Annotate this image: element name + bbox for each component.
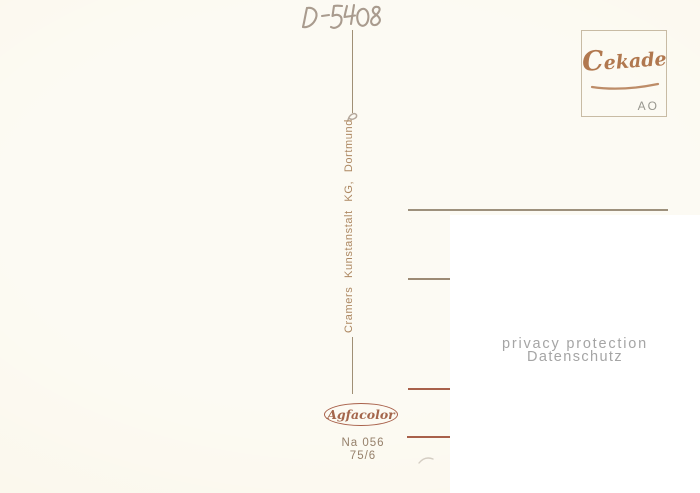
faint-pen-mark (418, 456, 434, 466)
series-number: 75/6 (324, 450, 402, 463)
address-line-2 (408, 278, 452, 280)
publisher-imprint: Cramers Kunstanstalt KG, Dortmund (343, 123, 359, 333)
cekade-logo-underline (588, 79, 662, 93)
address-line-1 (408, 209, 668, 211)
address-line-4 (407, 436, 451, 438)
handwritten-postal-code (294, 0, 398, 38)
agfacolor-badge: Agfacolor (324, 403, 398, 426)
privacy-overlay-text: privacy protection Datenschutz (450, 338, 700, 364)
privacy-line-german: Datenschutz (450, 351, 700, 364)
catalog-number: Na 056 (324, 437, 402, 450)
privacy-overlay: privacy protection Datenschutz (450, 215, 700, 493)
stamp-box-corner-label: AO (638, 99, 659, 113)
cekade-logo: Cekade (581, 41, 667, 78)
divider-line-bottom (352, 337, 353, 394)
catalog-block: Na 056 75/6 (324, 437, 402, 462)
stamp-box: Cekade AO (581, 30, 667, 117)
address-line-3 (408, 388, 451, 390)
divider-line-top (352, 30, 353, 113)
postcard-back: Cramers Kunstanstalt KG, Dortmund Cekade… (0, 0, 700, 493)
